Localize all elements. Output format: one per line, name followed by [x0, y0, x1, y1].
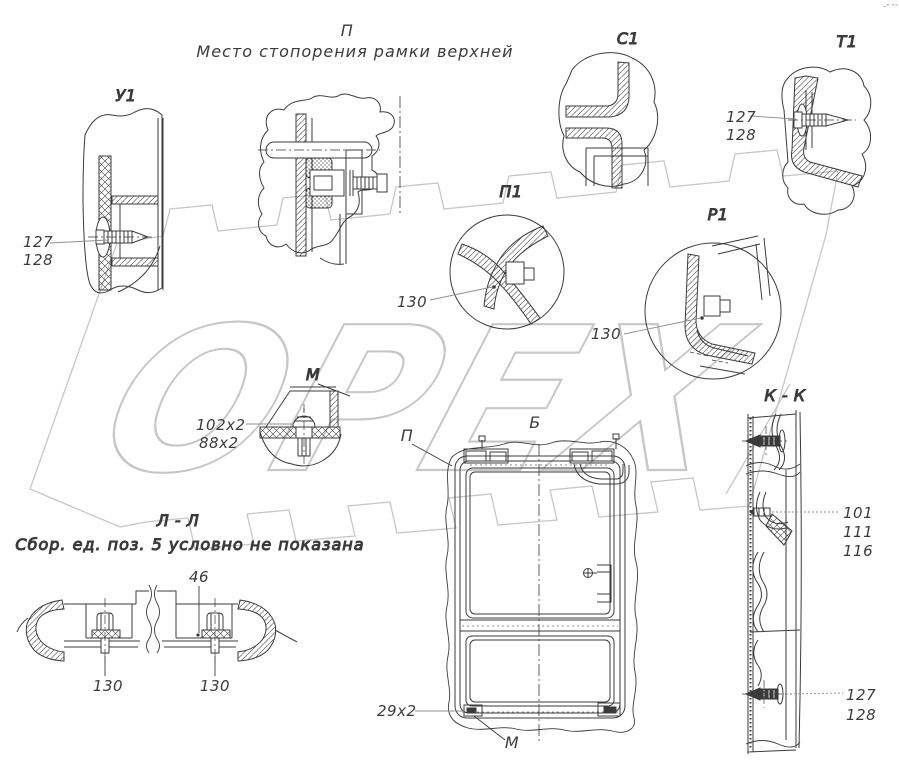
- header: П Место стопорения рамки верхней: [196, 21, 513, 61]
- m-callout-102: 102x2: [196, 416, 246, 434]
- m-label: М: [306, 365, 320, 384]
- ll-bolt-right: [202, 598, 230, 662]
- engineering-drawing-canvas: ОРЕХ П Место стопорения рамки верхней У1…: [0, 0, 899, 763]
- b-latch-mid-right: [583, 565, 611, 602]
- section-ll: Л - Л Сбор. ед. поз. 5 условно не показа…: [15, 511, 364, 695]
- kk-hook-hatch: [766, 514, 792, 545]
- view-t1: Т1 127 128: [726, 32, 871, 214]
- ll-label: Л - Л: [156, 511, 200, 530]
- c1-blob-outline: [559, 53, 658, 187]
- t1-screw: [788, 104, 856, 136]
- t1-label: Т1: [837, 32, 858, 51]
- u1-bracket-top-flange: [112, 196, 158, 204]
- kk-structure: [748, 410, 801, 754]
- kk-callout-111: 111: [843, 523, 873, 541]
- b-callout-29: 29x2: [377, 702, 417, 720]
- kk-screw-top: [742, 426, 790, 456]
- corner-artifact: [884, 4, 898, 7]
- b-lower-panel: [466, 636, 614, 706]
- ll-bolt-left-washer: [92, 630, 120, 638]
- t1-leader-127: [750, 116, 796, 119]
- drawing-sheet: ОРЕХ П Место стопорения рамки верхней У1…: [0, 0, 899, 763]
- c1-label: С1: [617, 29, 639, 48]
- b-latch-bl-fill: [467, 708, 476, 713]
- ll-bolt-left: [92, 598, 120, 662]
- b-ref-p: П: [401, 426, 414, 445]
- kk-callout-127: 127: [846, 686, 876, 704]
- ll-callout-46: 46: [189, 568, 209, 586]
- p-wall-hatch: [296, 114, 306, 256]
- t1-callout-128: 128: [726, 126, 756, 144]
- p-bolt-head: [377, 174, 387, 192]
- kk-callout-128: 128: [846, 706, 876, 724]
- r1-callout-130: 130: [591, 325, 621, 343]
- p-lock-mechanism: [306, 150, 387, 214]
- kk-label: К - К: [764, 386, 805, 405]
- u1-label: У1: [116, 86, 137, 105]
- section-kk: К - К 101 111 116: [742, 386, 876, 754]
- m-base-strip-right: [312, 427, 340, 438]
- kk-callout-101: 101: [843, 504, 873, 522]
- b-mid-rail: [460, 620, 620, 631]
- view-p-detail: [258, 94, 400, 264]
- m-base-strip-left: [260, 427, 296, 438]
- ll-right-cap: [238, 600, 276, 661]
- u1-screw: [88, 217, 154, 257]
- u1-bracket-bottom-flange: [112, 258, 158, 266]
- ll-46-point: [196, 633, 199, 636]
- r1-label: Р1: [708, 205, 729, 224]
- ll-callout-130-left: 130: [93, 677, 123, 695]
- r1-bolt-body: [704, 296, 720, 316]
- p1-bolt-head: [524, 268, 534, 280]
- m-side-hatch: [330, 391, 338, 427]
- header-caption: Место стопорения рамки верхней: [196, 42, 513, 61]
- kk-break-lines: [746, 463, 800, 748]
- p1-label: П1: [499, 182, 522, 201]
- c1-seal-band: [566, 62, 629, 117]
- p1-callout-130: 130: [397, 293, 427, 311]
- ll-break-lines: [147, 585, 160, 653]
- watermark-text: ОРЕХ: [76, 286, 773, 518]
- b-latch-bottom-right: [598, 703, 620, 716]
- b-ref-m: М: [505, 733, 519, 752]
- kk-hook: [757, 492, 793, 545]
- kk-leader-127: [782, 693, 843, 694]
- p1-fastener-point: [492, 285, 496, 289]
- ll-bolt-right-washer: [202, 630, 230, 638]
- b-latch-bottom-left: [464, 705, 482, 716]
- ll-left-cap: [26, 600, 64, 661]
- kk-screw-bottom: [742, 680, 792, 708]
- ll-callout-130-right: 130: [200, 677, 230, 695]
- ll-note: Сбор. ед. поз. 5 условно не показана: [15, 535, 364, 554]
- t1-callout-127: 127: [726, 108, 756, 126]
- p-lock-tongue: [310, 170, 344, 196]
- u1-callout-128: 128: [23, 251, 53, 269]
- r1-bolt-head: [720, 300, 730, 312]
- kk-callout-116: 116: [843, 542, 873, 560]
- kk-bolt-101: [750, 508, 770, 516]
- u1-callout-127: 127: [23, 233, 53, 251]
- b-latch-br-fill: [604, 707, 616, 713]
- b-lower-panel-inner: [470, 640, 610, 702]
- header-view-letter: П: [341, 21, 354, 40]
- p1-bolt-body: [506, 262, 524, 284]
- view-u1: У1 127 128: [23, 86, 163, 293]
- b-label: Б: [529, 413, 540, 432]
- b-latch-mr-bracket: [597, 565, 611, 602]
- view-c1: С1: [559, 29, 658, 188]
- m-callout-88: 88x2: [199, 434, 239, 452]
